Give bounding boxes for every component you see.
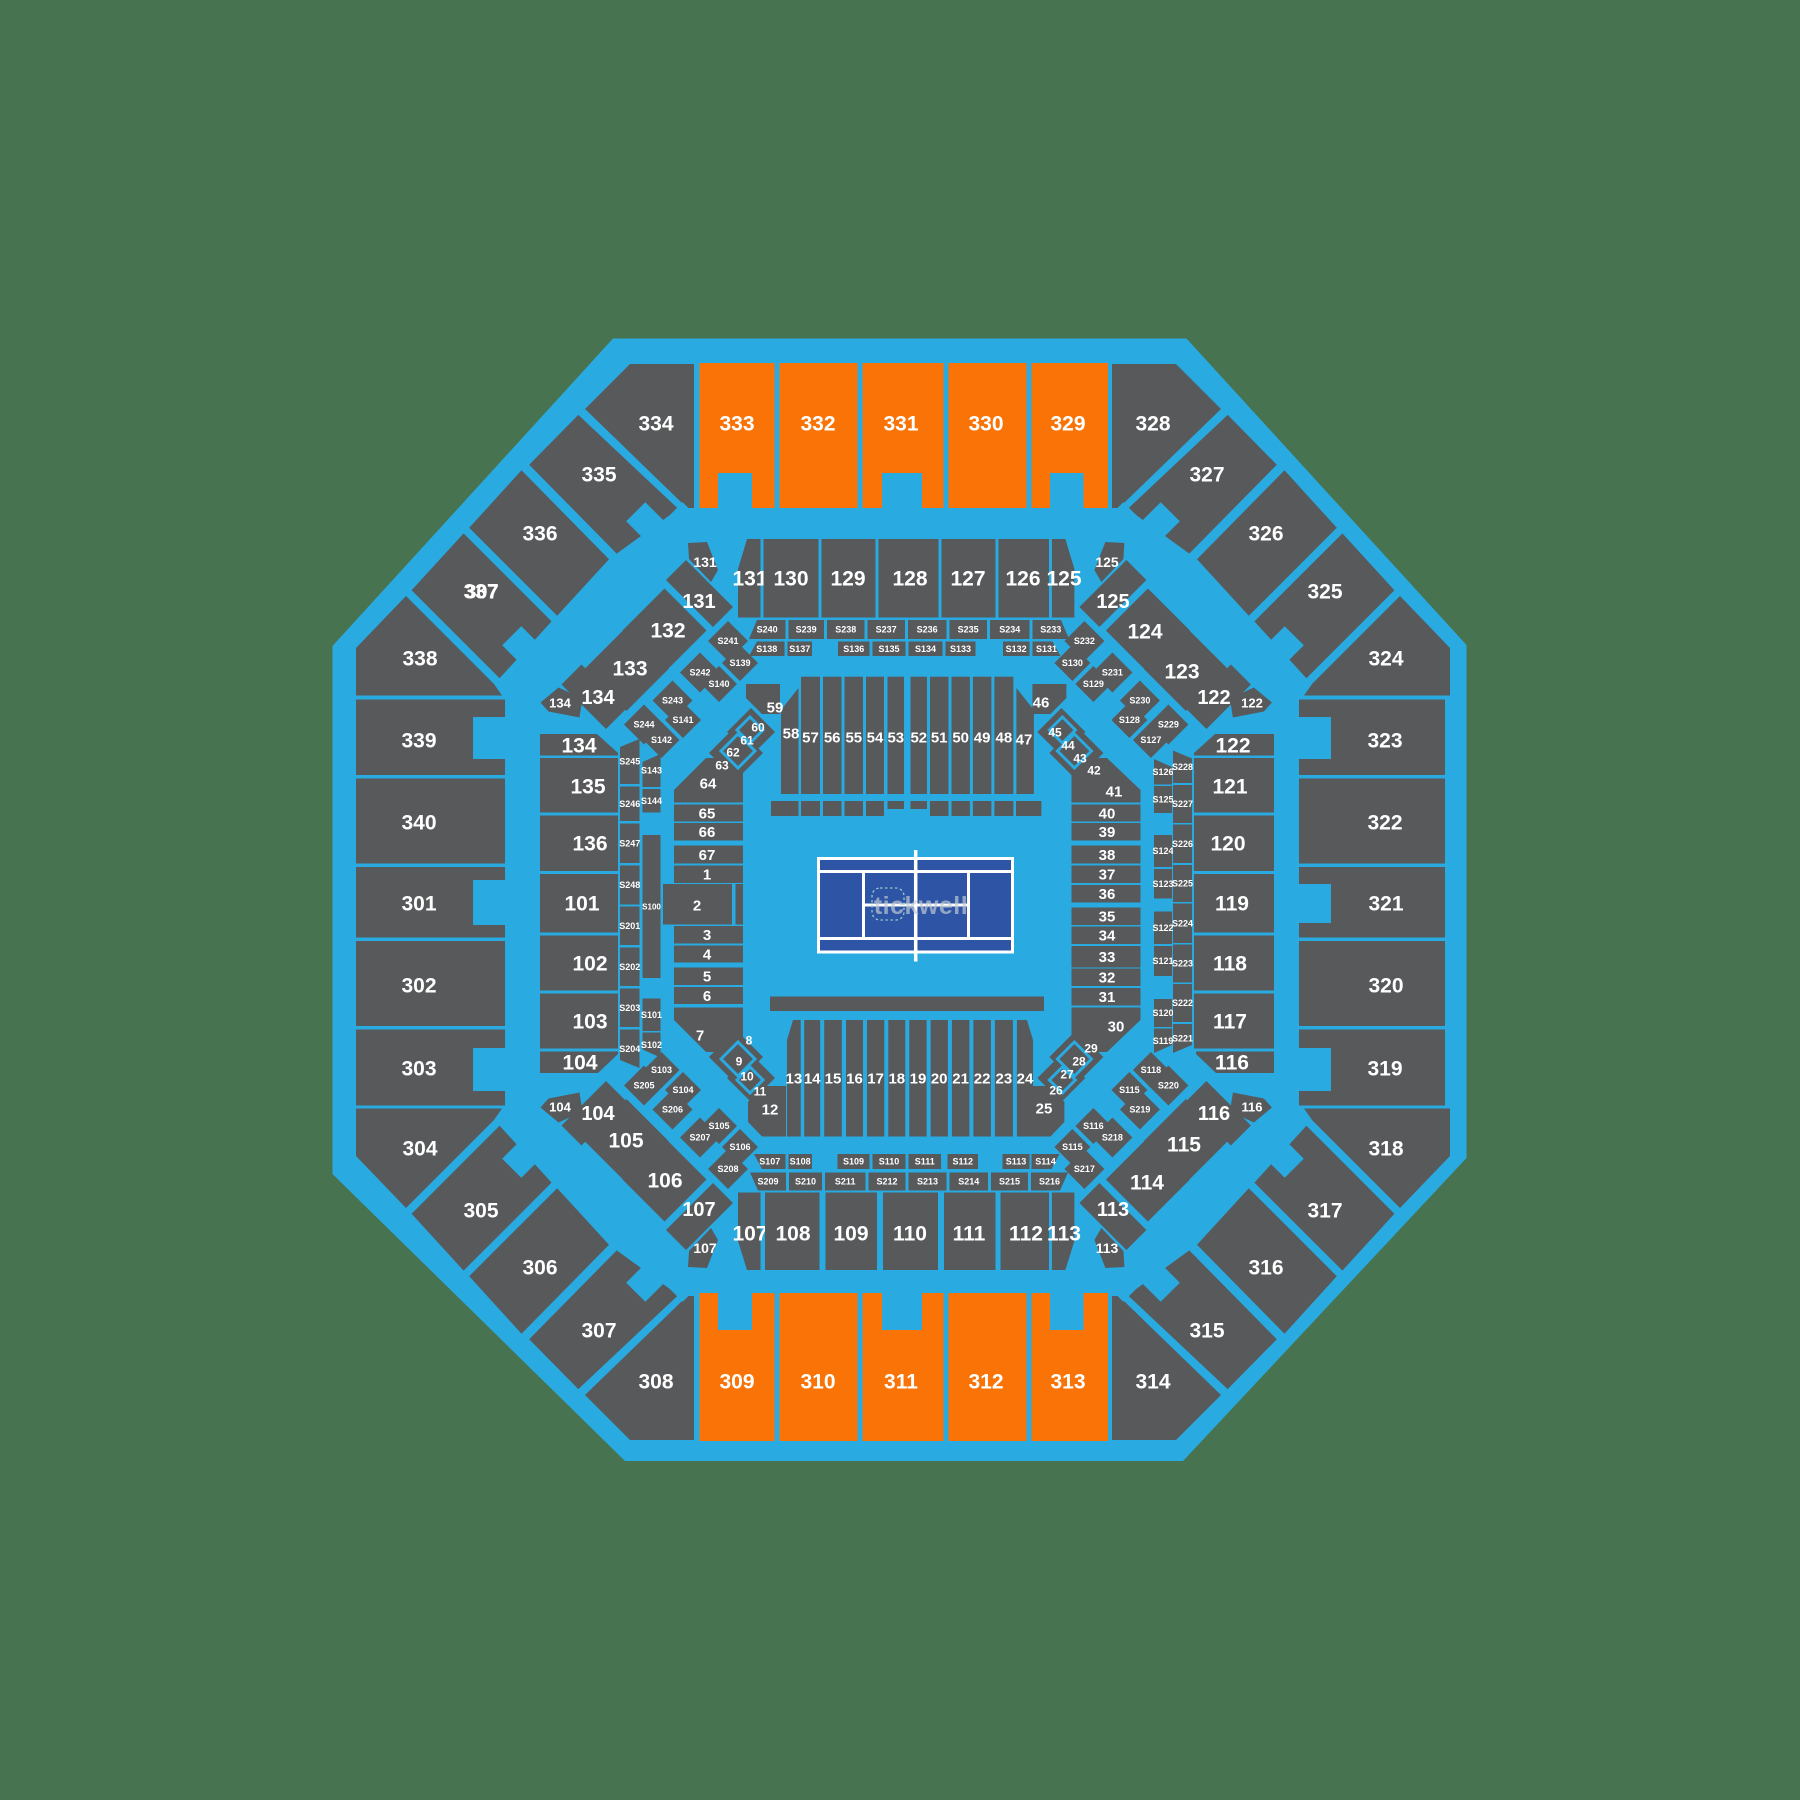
svg-text:303: 303: [401, 1058, 436, 1081]
svg-text:135: 135: [570, 776, 605, 799]
svg-text:335: 335: [581, 464, 616, 487]
svg-text:38: 38: [1099, 847, 1116, 864]
svg-text:304: 304: [402, 1138, 437, 1161]
svg-text:106: 106: [647, 1170, 682, 1193]
svg-text:116: 116: [1242, 1100, 1263, 1115]
svg-text:18: 18: [888, 1070, 905, 1087]
svg-text:330: 330: [968, 413, 1003, 436]
svg-text:S119: S119: [1153, 1036, 1174, 1046]
svg-text:67: 67: [699, 847, 716, 864]
svg-text:326: 326: [1248, 523, 1283, 546]
svg-text:128: 128: [892, 568, 927, 591]
svg-text:S123: S123: [1152, 879, 1173, 889]
svg-text:S231: S231: [1102, 668, 1123, 678]
svg-text:125: 125: [1046, 568, 1081, 591]
svg-text:S212: S212: [876, 1177, 897, 1187]
svg-text:S141: S141: [672, 715, 693, 725]
svg-text:55: 55: [845, 729, 862, 746]
svg-text:119: 119: [1215, 893, 1249, 916]
svg-text:S224: S224: [1172, 919, 1193, 929]
svg-text:S223: S223: [1172, 959, 1193, 969]
svg-text:332: 332: [800, 413, 835, 436]
svg-text:S245: S245: [619, 757, 640, 767]
svg-text:45: 45: [1048, 725, 1062, 739]
svg-text:318: 318: [1368, 1138, 1403, 1161]
svg-text:S132: S132: [1006, 644, 1027, 654]
svg-text:S137: S137: [789, 644, 810, 654]
svg-text:42: 42: [1087, 763, 1101, 777]
svg-text:S138: S138: [756, 644, 777, 654]
svg-text:107: 107: [732, 1223, 767, 1246]
svg-text:336: 336: [522, 523, 557, 546]
svg-text:24: 24: [1017, 1070, 1034, 1087]
svg-text:306: 306: [522, 1257, 557, 1280]
svg-text:131: 131: [682, 591, 715, 613]
svg-text:122: 122: [1197, 687, 1230, 709]
svg-text:14: 14: [804, 1070, 821, 1087]
svg-text:327: 327: [1189, 464, 1224, 487]
svg-text:S112: S112: [953, 1157, 974, 1167]
svg-text:113: 113: [1096, 1240, 1119, 1256]
svg-text:S133: S133: [950, 644, 971, 654]
svg-text:S104: S104: [672, 1085, 693, 1095]
svg-text:126: 126: [1005, 568, 1040, 591]
svg-text:311: 311: [884, 1371, 918, 1394]
svg-text:51: 51: [931, 729, 948, 746]
svg-text:S230: S230: [1129, 696, 1150, 706]
svg-text:S111: S111: [915, 1157, 935, 1167]
svg-text:S144: S144: [641, 796, 662, 806]
svg-text:62: 62: [726, 745, 740, 759]
svg-text:4: 4: [703, 946, 712, 963]
svg-text:S136: S136: [843, 644, 864, 654]
svg-text:S116: S116: [1083, 1121, 1104, 1131]
svg-text:129: 129: [830, 568, 865, 591]
svg-text:S113: S113: [1006, 1157, 1027, 1167]
svg-text:44: 44: [1061, 738, 1075, 752]
svg-text:26: 26: [1049, 1083, 1063, 1097]
svg-text:120: 120: [1210, 833, 1245, 856]
svg-text:334: 334: [638, 413, 673, 436]
svg-text:17: 17: [867, 1070, 884, 1087]
svg-text:309: 309: [719, 1371, 754, 1394]
svg-text:34: 34: [1099, 928, 1116, 945]
svg-text:S204: S204: [619, 1044, 640, 1054]
svg-text:S127: S127: [1140, 735, 1161, 745]
svg-text:54: 54: [867, 729, 884, 746]
svg-text:S218: S218: [1102, 1133, 1123, 1143]
svg-text:316: 316: [1248, 1257, 1283, 1280]
svg-text:9: 9: [736, 1054, 743, 1068]
svg-text:2: 2: [693, 897, 701, 914]
svg-text:S208: S208: [717, 1164, 738, 1174]
svg-text:113: 113: [1097, 1199, 1129, 1221]
svg-text:127: 127: [950, 568, 985, 591]
svg-text:315: 315: [1189, 1320, 1224, 1343]
svg-text:S125: S125: [1152, 795, 1173, 805]
svg-text:S238: S238: [835, 625, 856, 635]
svg-text:S232: S232: [1074, 636, 1095, 646]
svg-text:302: 302: [401, 975, 436, 998]
svg-text:50: 50: [952, 729, 969, 746]
svg-text:113: 113: [1047, 1223, 1081, 1246]
svg-text:S124: S124: [1152, 846, 1173, 856]
svg-text:S209: S209: [757, 1177, 778, 1187]
svg-text:104: 104: [549, 1100, 571, 1115]
svg-text:123: 123: [1164, 661, 1199, 684]
svg-text:107: 107: [693, 1240, 717, 1256]
svg-text:32: 32: [1099, 970, 1116, 987]
svg-text:116: 116: [1198, 1103, 1230, 1125]
svg-text:S140: S140: [708, 679, 729, 689]
svg-text:tickwell: tickwell: [874, 892, 968, 920]
svg-text:31: 31: [1099, 989, 1116, 1006]
svg-text:S126: S126: [1152, 767, 1173, 777]
svg-text:8: 8: [746, 1033, 753, 1047]
svg-text:125: 125: [1096, 591, 1129, 613]
svg-text:S134: S134: [915, 644, 936, 654]
svg-text:325: 325: [1307, 581, 1342, 604]
svg-text:S244: S244: [633, 720, 654, 730]
svg-text:321: 321: [1368, 893, 1403, 916]
svg-text:340: 340: [401, 812, 436, 835]
svg-text:322: 322: [1367, 812, 1402, 835]
svg-text:S201: S201: [619, 921, 640, 931]
svg-text:S103: S103: [651, 1065, 672, 1075]
svg-text:301: 301: [401, 893, 436, 916]
svg-text:S205: S205: [633, 1081, 654, 1091]
svg-text:3: 3: [703, 927, 711, 944]
svg-text:S235: S235: [958, 625, 979, 635]
svg-text:308: 308: [638, 1371, 673, 1394]
svg-text:314: 314: [1135, 1371, 1170, 1394]
svg-text:S217: S217: [1074, 1164, 1095, 1174]
svg-text:S129: S129: [1083, 679, 1104, 689]
svg-text:S142: S142: [651, 735, 672, 745]
svg-text:S139: S139: [729, 658, 750, 668]
svg-text:125: 125: [1095, 554, 1119, 570]
svg-text:305: 305: [463, 1200, 498, 1223]
svg-text:16: 16: [846, 1070, 863, 1087]
svg-text:41: 41: [1106, 783, 1123, 800]
svg-text:S211: S211: [835, 1177, 856, 1187]
svg-text:104: 104: [581, 1103, 615, 1125]
svg-text:323: 323: [1367, 730, 1402, 753]
svg-text:124: 124: [1127, 621, 1162, 644]
svg-text:S210: S210: [795, 1177, 816, 1187]
svg-text:39: 39: [1099, 824, 1116, 841]
svg-text:36: 36: [1099, 886, 1116, 903]
svg-text:319: 319: [1367, 1058, 1402, 1081]
svg-text:20: 20: [931, 1070, 948, 1087]
svg-text:15: 15: [825, 1070, 842, 1087]
svg-text:S102: S102: [641, 1040, 662, 1050]
svg-text:108: 108: [775, 1223, 810, 1246]
svg-text:328: 328: [1135, 413, 1170, 436]
svg-text:S226: S226: [1172, 839, 1193, 849]
svg-text:64: 64: [700, 775, 717, 792]
svg-text:63: 63: [715, 758, 729, 772]
svg-text:121: 121: [1212, 776, 1247, 799]
svg-text:110: 110: [893, 1223, 927, 1246]
svg-text:S227: S227: [1172, 799, 1193, 809]
svg-text:114: 114: [1130, 1172, 1164, 1195]
svg-text:136: 136: [572, 833, 607, 856]
svg-text:S215: S215: [999, 1177, 1020, 1187]
svg-text:107: 107: [682, 1199, 715, 1221]
svg-text:S247: S247: [619, 839, 640, 849]
svg-text:S242: S242: [689, 668, 710, 678]
svg-text:S222: S222: [1172, 998, 1193, 1008]
svg-text:29: 29: [1084, 1041, 1098, 1055]
svg-text:61: 61: [740, 733, 754, 747]
svg-text:320: 320: [1368, 975, 1403, 998]
svg-text:56: 56: [824, 729, 841, 746]
svg-text:5: 5: [703, 969, 711, 986]
svg-text:11: 11: [754, 1084, 767, 1098]
svg-text:109: 109: [833, 1223, 868, 1246]
svg-text:131: 131: [693, 554, 717, 570]
svg-text:310: 310: [800, 1371, 835, 1394]
svg-text:30: 30: [1108, 1018, 1125, 1035]
svg-text:12: 12: [762, 1101, 779, 1118]
svg-text:307: 307: [465, 582, 498, 604]
svg-text:28: 28: [1072, 1054, 1086, 1068]
svg-text:S101: S101: [641, 1010, 662, 1020]
svg-text:S105: S105: [708, 1121, 729, 1131]
svg-text:132: 132: [650, 620, 685, 643]
svg-text:S109: S109: [843, 1157, 864, 1167]
svg-text:307: 307: [581, 1320, 616, 1343]
svg-text:S206: S206: [662, 1105, 683, 1115]
svg-text:S228: S228: [1172, 762, 1193, 772]
svg-text:S240: S240: [757, 625, 778, 635]
svg-text:S233: S233: [1040, 625, 1061, 635]
svg-text:7: 7: [696, 1027, 704, 1044]
svg-text:37: 37: [1099, 867, 1116, 884]
svg-text:S135: S135: [878, 644, 899, 654]
svg-text:117: 117: [1213, 1011, 1247, 1034]
svg-text:S100: S100: [642, 902, 661, 911]
svg-text:333: 333: [719, 413, 754, 436]
svg-text:S115: S115: [1119, 1085, 1140, 1095]
svg-text:27: 27: [1060, 1067, 1074, 1081]
svg-text:S121: S121: [1152, 956, 1173, 966]
svg-text:S239: S239: [796, 625, 817, 635]
svg-text:48: 48: [996, 729, 1013, 746]
svg-text:S203: S203: [619, 1003, 640, 1013]
svg-text:S114: S114: [1035, 1157, 1056, 1167]
svg-text:43: 43: [1073, 751, 1087, 765]
svg-text:134: 134: [581, 687, 615, 709]
svg-text:324: 324: [1368, 648, 1403, 671]
svg-text:25: 25: [1036, 1100, 1053, 1117]
svg-text:102: 102: [572, 953, 607, 976]
svg-text:6: 6: [703, 988, 711, 1005]
svg-text:S115: S115: [1062, 1142, 1083, 1152]
svg-text:33: 33: [1099, 949, 1116, 966]
svg-text:52: 52: [910, 729, 927, 746]
svg-text:S248: S248: [619, 880, 640, 890]
svg-text:329: 329: [1050, 413, 1085, 436]
svg-text:22: 22: [974, 1070, 991, 1087]
svg-text:S241: S241: [717, 636, 738, 646]
svg-text:1: 1: [703, 867, 711, 884]
svg-text:53: 53: [887, 729, 904, 746]
svg-text:S106: S106: [729, 1142, 750, 1152]
svg-text:S229: S229: [1158, 720, 1179, 730]
svg-text:118: 118: [1213, 953, 1247, 976]
svg-text:339: 339: [401, 730, 436, 753]
svg-text:105: 105: [608, 1130, 643, 1153]
svg-text:46: 46: [1033, 694, 1050, 711]
svg-text:S243: S243: [662, 696, 683, 706]
svg-text:13: 13: [786, 1070, 803, 1087]
svg-text:10: 10: [740, 1069, 754, 1083]
svg-text:S214: S214: [958, 1177, 979, 1187]
svg-text:19: 19: [910, 1070, 927, 1087]
svg-text:47: 47: [1016, 731, 1033, 748]
svg-text:S128: S128: [1119, 715, 1140, 725]
svg-text:S237: S237: [876, 625, 897, 635]
svg-text:115: 115: [1167, 1134, 1201, 1157]
svg-text:S108: S108: [790, 1157, 811, 1167]
svg-text:S220: S220: [1158, 1081, 1179, 1091]
svg-text:122: 122: [1215, 735, 1250, 758]
svg-text:317: 317: [1307, 1200, 1342, 1223]
svg-text:40: 40: [1099, 805, 1116, 822]
svg-text:57: 57: [802, 729, 819, 746]
svg-text:66: 66: [699, 824, 716, 841]
svg-text:S120: S120: [1152, 1008, 1173, 1018]
svg-text:S236: S236: [917, 625, 938, 635]
svg-text:35: 35: [1099, 909, 1116, 926]
svg-text:S122: S122: [1152, 923, 1173, 933]
svg-text:65: 65: [699, 805, 716, 822]
svg-text:338: 338: [402, 648, 437, 671]
svg-text:S130: S130: [1062, 658, 1083, 668]
svg-text:116: 116: [1215, 1052, 1249, 1075]
svg-text:130: 130: [773, 568, 808, 591]
svg-text:S107: S107: [759, 1157, 780, 1167]
svg-text:60: 60: [751, 720, 765, 734]
svg-text:103: 103: [572, 1011, 607, 1034]
svg-text:59: 59: [767, 699, 784, 716]
svg-text:S207: S207: [689, 1133, 710, 1143]
svg-text:S216: S216: [1039, 1177, 1060, 1187]
svg-text:S213: S213: [917, 1177, 938, 1187]
svg-text:104: 104: [562, 1052, 597, 1075]
svg-text:21: 21: [952, 1070, 969, 1087]
svg-text:312: 312: [968, 1371, 1003, 1394]
svg-text:S202: S202: [619, 962, 640, 972]
svg-text:313: 313: [1050, 1371, 1085, 1394]
svg-text:111: 111: [953, 1223, 986, 1246]
svg-text:331: 331: [883, 413, 918, 436]
svg-text:122: 122: [1241, 696, 1263, 711]
svg-text:S219: S219: [1129, 1105, 1150, 1115]
svg-text:131: 131: [732, 568, 767, 591]
svg-text:49: 49: [974, 729, 991, 746]
svg-text:S225: S225: [1172, 879, 1193, 889]
svg-text:133: 133: [612, 658, 647, 681]
svg-text:S110: S110: [879, 1157, 900, 1167]
svg-text:58: 58: [783, 725, 800, 742]
svg-text:S118: S118: [1141, 1065, 1162, 1075]
svg-text:S234: S234: [999, 625, 1020, 635]
svg-text:23: 23: [996, 1070, 1013, 1087]
svg-text:S131: S131: [1036, 644, 1057, 654]
svg-text:112: 112: [1009, 1223, 1043, 1246]
svg-text:S221: S221: [1172, 1034, 1193, 1044]
svg-text:134: 134: [561, 735, 596, 758]
svg-text:S246: S246: [619, 799, 640, 809]
svg-text:S143: S143: [641, 766, 662, 776]
svg-text:101: 101: [564, 893, 599, 916]
svg-text:134: 134: [549, 696, 571, 711]
